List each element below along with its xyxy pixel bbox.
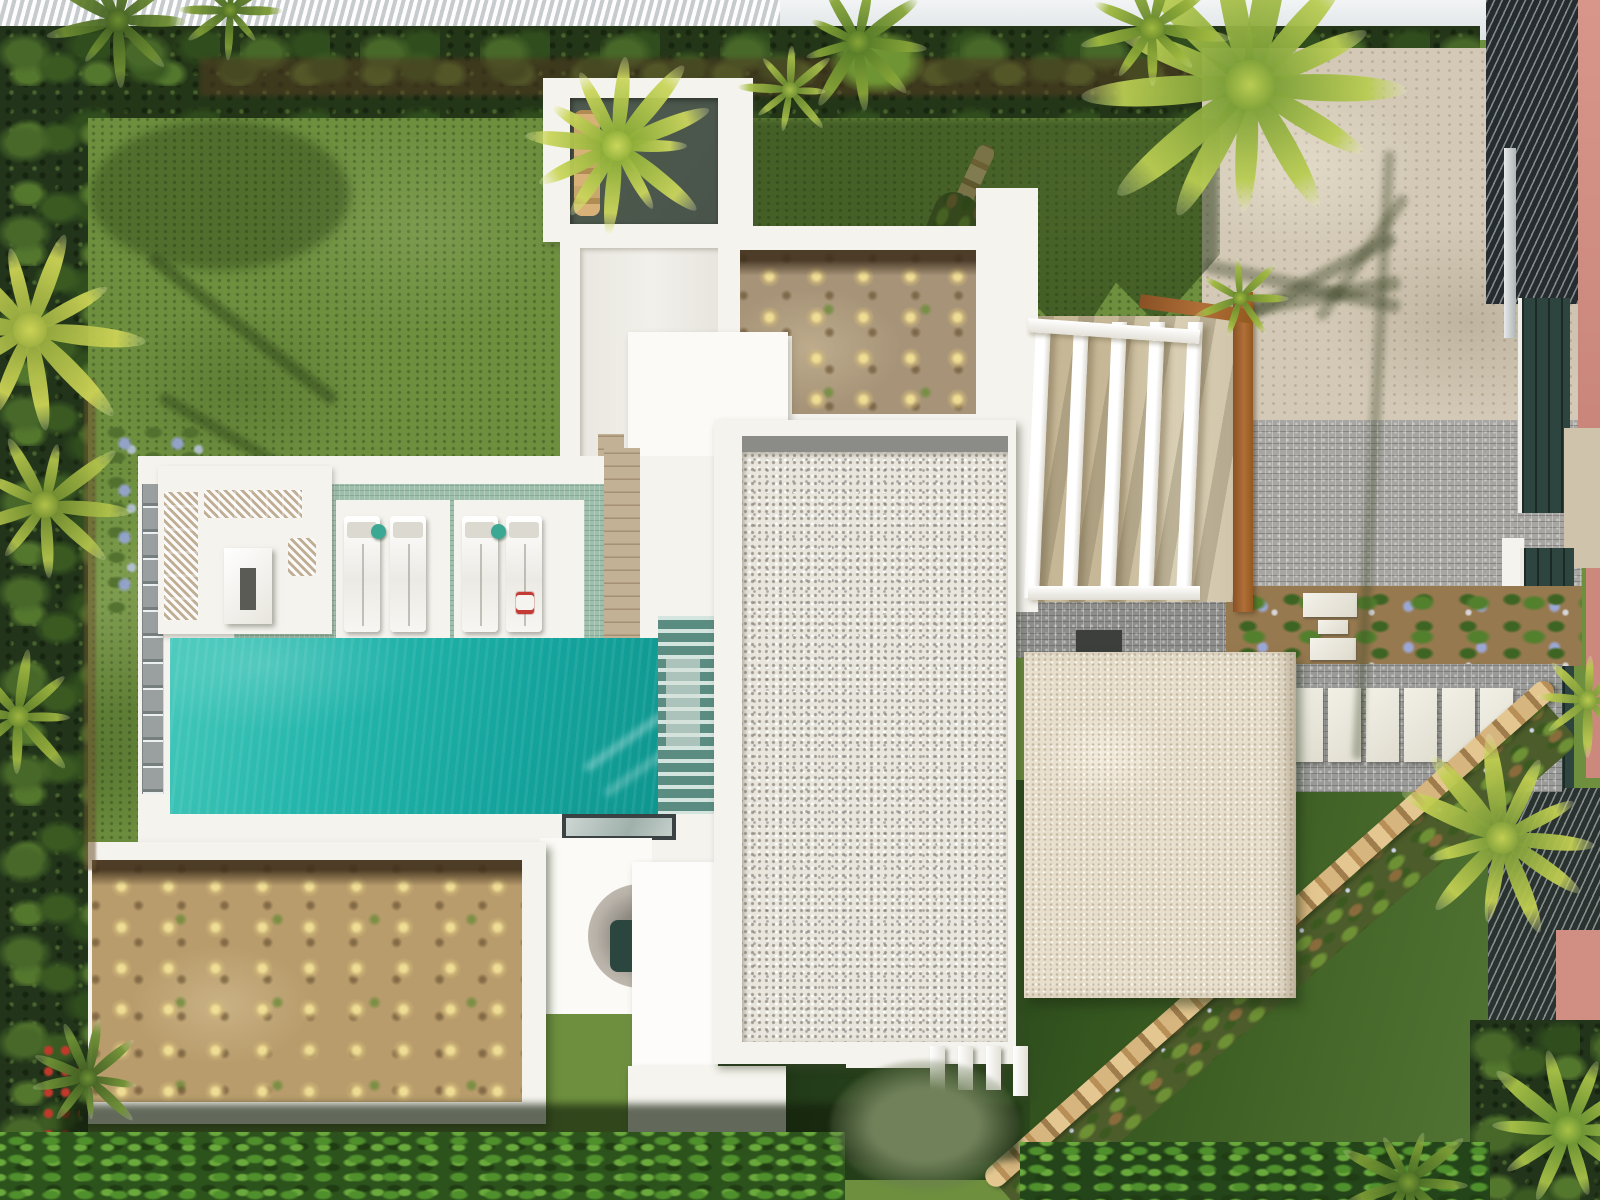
palm-tree (0, 646, 88, 786)
stepper-3 (1310, 638, 1356, 660)
olive-tree (830, 1060, 1020, 1190)
sun-lounger (506, 516, 542, 632)
neighbor-louver-roof (1486, 0, 1586, 304)
sofa-cushions-left (164, 492, 198, 620)
side-table (491, 524, 506, 539)
gravel-roof-interior (742, 452, 1008, 1042)
swimming-pool (170, 638, 658, 814)
palm-crown (1579, 691, 1596, 708)
gravel-roof-topstrip (742, 436, 1008, 452)
sofa-cushions-top (204, 490, 302, 518)
stucco-roof-block (1024, 652, 1296, 998)
stepper-2 (1318, 620, 1348, 634)
fire-table-slot (240, 568, 256, 610)
palm-tree (1192, 250, 1288, 346)
gate-upper (1518, 298, 1570, 513)
palm-crown (1225, 60, 1275, 110)
palm-crown (79, 1069, 97, 1087)
sofa-cushion-extra (288, 538, 316, 576)
side-table (371, 524, 386, 539)
palm-tree (0, 215, 145, 445)
path-beige-right (1564, 428, 1600, 568)
stepper-1 (1303, 593, 1357, 617)
aerial-villa-photo (0, 0, 1600, 1200)
palm-crown (847, 31, 869, 53)
palm-tree (1072, 0, 1232, 108)
sun-lounger (390, 516, 426, 632)
palm-tree (28, 1018, 148, 1138)
palm-crown (32, 492, 58, 518)
palm-crown (1486, 822, 1518, 854)
palm-crown (602, 131, 632, 161)
palm-tree (1476, 1038, 1600, 1200)
pergola-footer-beam (1028, 586, 1200, 600)
palm-crown (1554, 1116, 1582, 1144)
palm-tree (1530, 642, 1600, 758)
roof-fin (1013, 1046, 1028, 1096)
bed-bottom-interior (92, 860, 522, 1102)
hedge-bottom-left (0, 1132, 845, 1200)
pool-wood-walkway (604, 448, 640, 662)
palm-tree (517, 46, 717, 246)
palm-crown (8, 706, 29, 727)
palm-tree (1338, 1112, 1478, 1200)
palm-crown (1140, 16, 1164, 40)
palm-tree (738, 38, 842, 142)
palm-tree (175, 0, 285, 65)
pool-tray (516, 592, 534, 614)
stepping-slab (1366, 688, 1399, 762)
skylight (562, 814, 676, 840)
palm-crown (782, 82, 798, 98)
palm-tree (43, 0, 193, 95)
palm-tree (0, 420, 130, 590)
gate-rail-pole (1504, 148, 1516, 338)
salmon-wall (1578, 0, 1600, 448)
pool-slat-panel (666, 658, 700, 746)
palm-crown (1398, 1172, 1419, 1193)
palm-tree (1397, 733, 1600, 943)
grill-inset (1076, 630, 1122, 652)
